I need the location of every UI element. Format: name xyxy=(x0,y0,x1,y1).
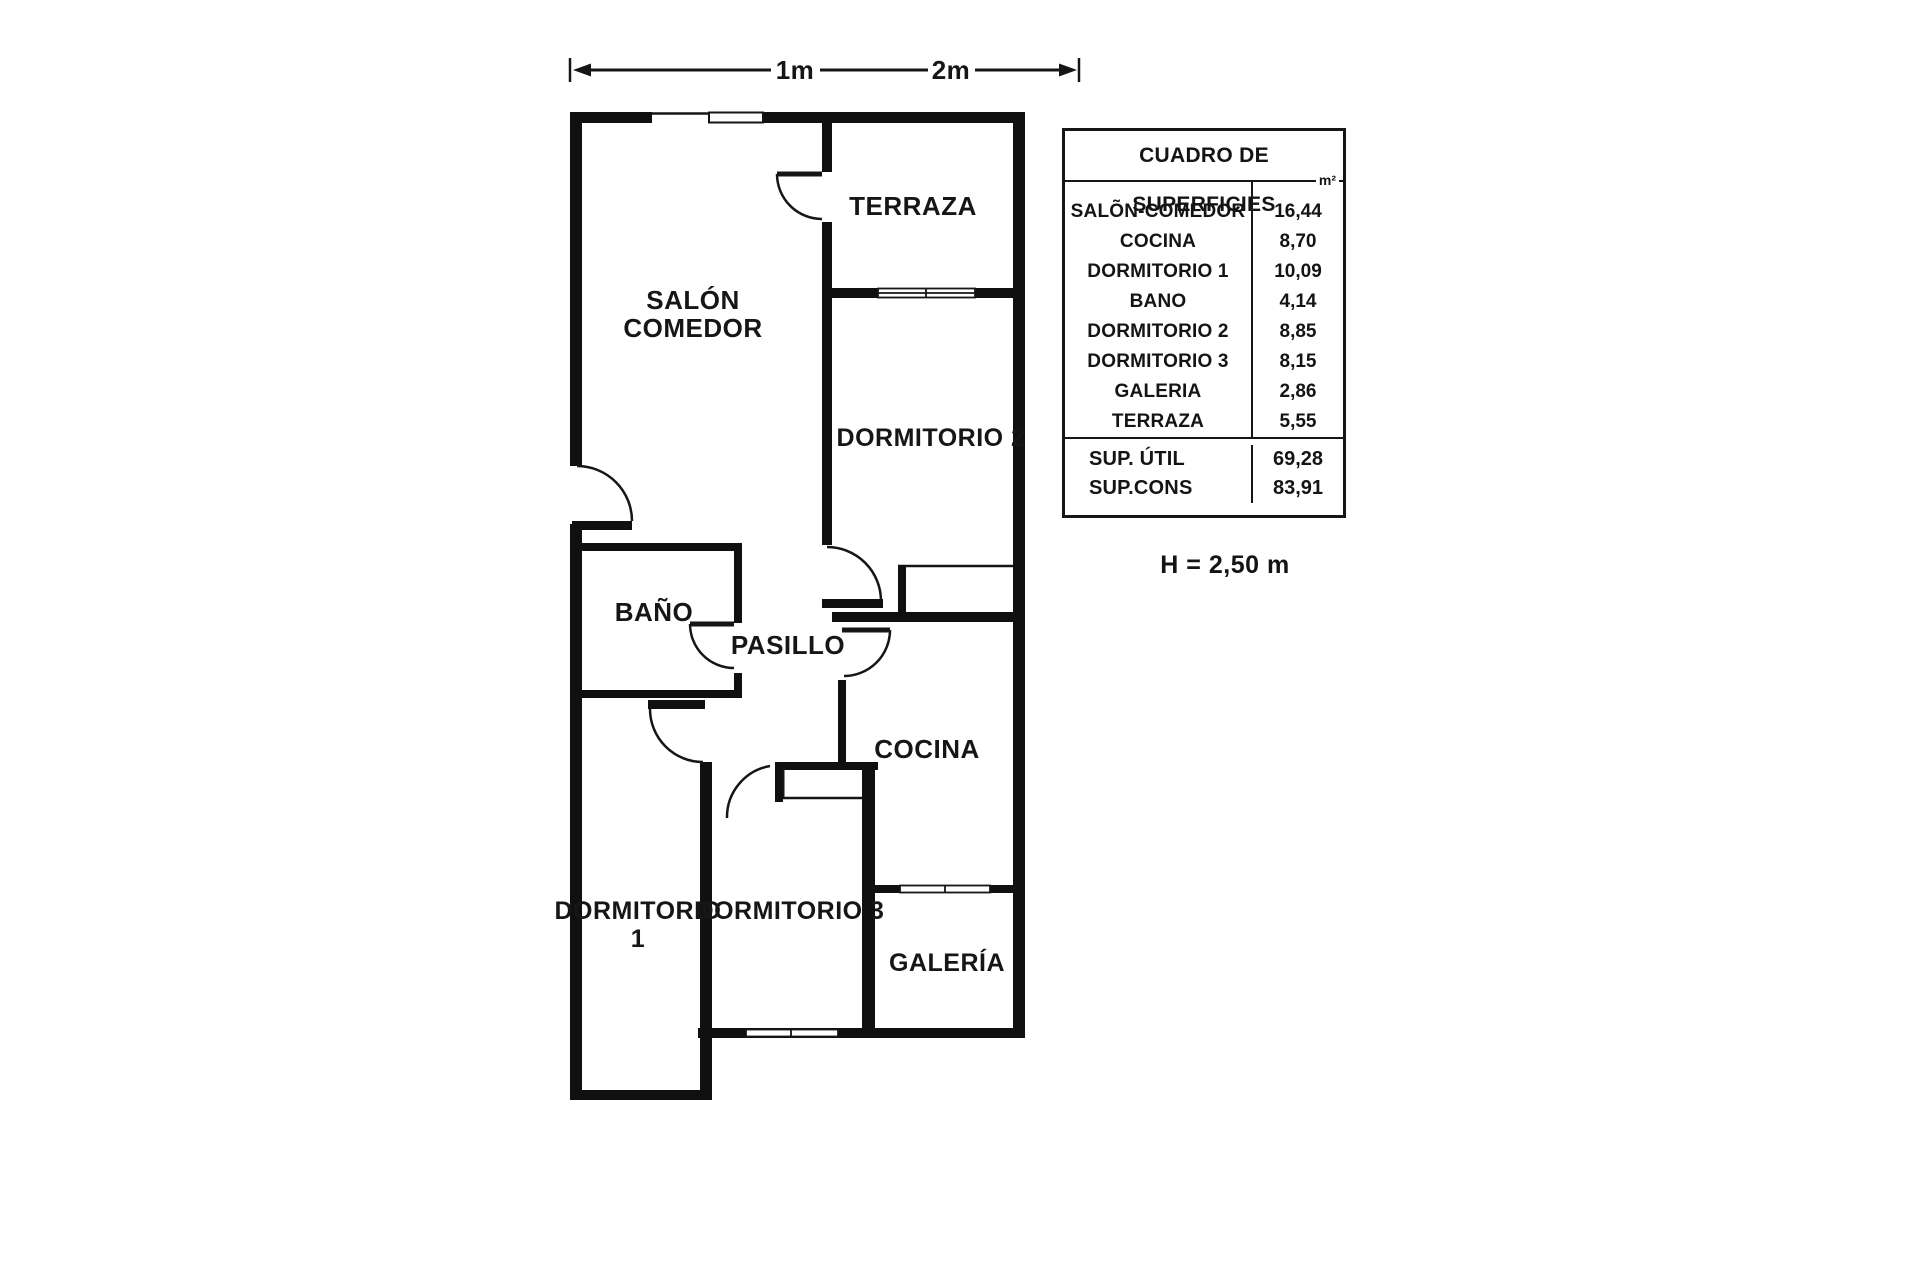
table-row: DORMITORIO 3 8,15 xyxy=(1065,347,1343,377)
cocina-door xyxy=(842,630,890,676)
dorm3-door xyxy=(727,762,783,818)
room-label-dormitorio1-number: 1 xyxy=(631,925,645,953)
table-row: GALERIA 2,86 xyxy=(1065,377,1343,407)
table-row: COCINA 8,70 xyxy=(1065,227,1343,257)
ceiling-height-note: H = 2,50 m xyxy=(1125,551,1325,580)
galeria-window xyxy=(900,886,990,893)
floorplan-page: 1m 2m xyxy=(0,0,1920,1280)
scale-bar: 1m 2m xyxy=(570,55,1079,85)
table-row: TERRAZA 5,55 xyxy=(1065,407,1343,437)
room-label-galeria: GALERÍA xyxy=(889,948,1005,977)
dorm3-window xyxy=(746,1030,838,1037)
table-total-row: SUP. ÚTIL 69,28 xyxy=(1065,445,1343,474)
unit-header: m² xyxy=(1316,172,1339,188)
room-labels: TERRAZA SALÓN COMEDOR DORMITORIO 2 BAÑO … xyxy=(554,191,1025,977)
dorm1-door xyxy=(648,700,705,762)
surface-table-totals: SUP. ÚTIL 69,28 SUP.CONS 83,91 xyxy=(1065,437,1343,515)
salon-window-2 xyxy=(709,113,763,123)
room-label-cocina: COCINA xyxy=(874,734,980,764)
table-row: DORMITORIO 1 10,09 xyxy=(1065,257,1343,287)
scale-label-1m: 1m xyxy=(776,55,815,85)
room-label-bano: BAÑO xyxy=(615,597,694,627)
table-row: BANO 4,14 xyxy=(1065,287,1343,317)
floorplan-drawing: 1m 2m xyxy=(0,0,1920,1280)
table-total-row: SUP.CONS 83,91 xyxy=(1065,474,1343,503)
scale-label-2m: 2m xyxy=(932,55,971,85)
scale-arrow-left-icon xyxy=(573,64,591,77)
surface-table-title: CUADRO DE SUPERFICIES xyxy=(1065,131,1343,182)
room-label-comedor: COMEDOR xyxy=(623,313,762,343)
table-row: SALÕN-COMEDOR 16,44 xyxy=(1065,197,1343,227)
bano-door xyxy=(690,624,734,668)
scale-arrow-right-icon xyxy=(1059,64,1077,77)
room-label-dormitorio2: DORMITORIO 2 xyxy=(837,424,1026,452)
table-row: DORMITORIO 2 8,85 xyxy=(1065,317,1343,347)
terraza-dorm2-window xyxy=(878,289,975,298)
surface-table-unit-row: m² xyxy=(1065,182,1343,197)
terraza-door xyxy=(777,174,822,219)
surface-table: CUADRO DE SUPERFICIES m² SALÕN-COMEDOR 1… xyxy=(1062,128,1346,518)
room-label-pasillo: PASILLO xyxy=(731,630,845,660)
room-label-dormitorio3: DORMITORIO 3 xyxy=(696,897,885,925)
dorm2-door xyxy=(822,547,883,608)
room-label-terraza: TERRAZA xyxy=(849,191,977,221)
room-label-salon: SALÓN xyxy=(646,285,740,315)
entrance-door xyxy=(572,466,632,530)
